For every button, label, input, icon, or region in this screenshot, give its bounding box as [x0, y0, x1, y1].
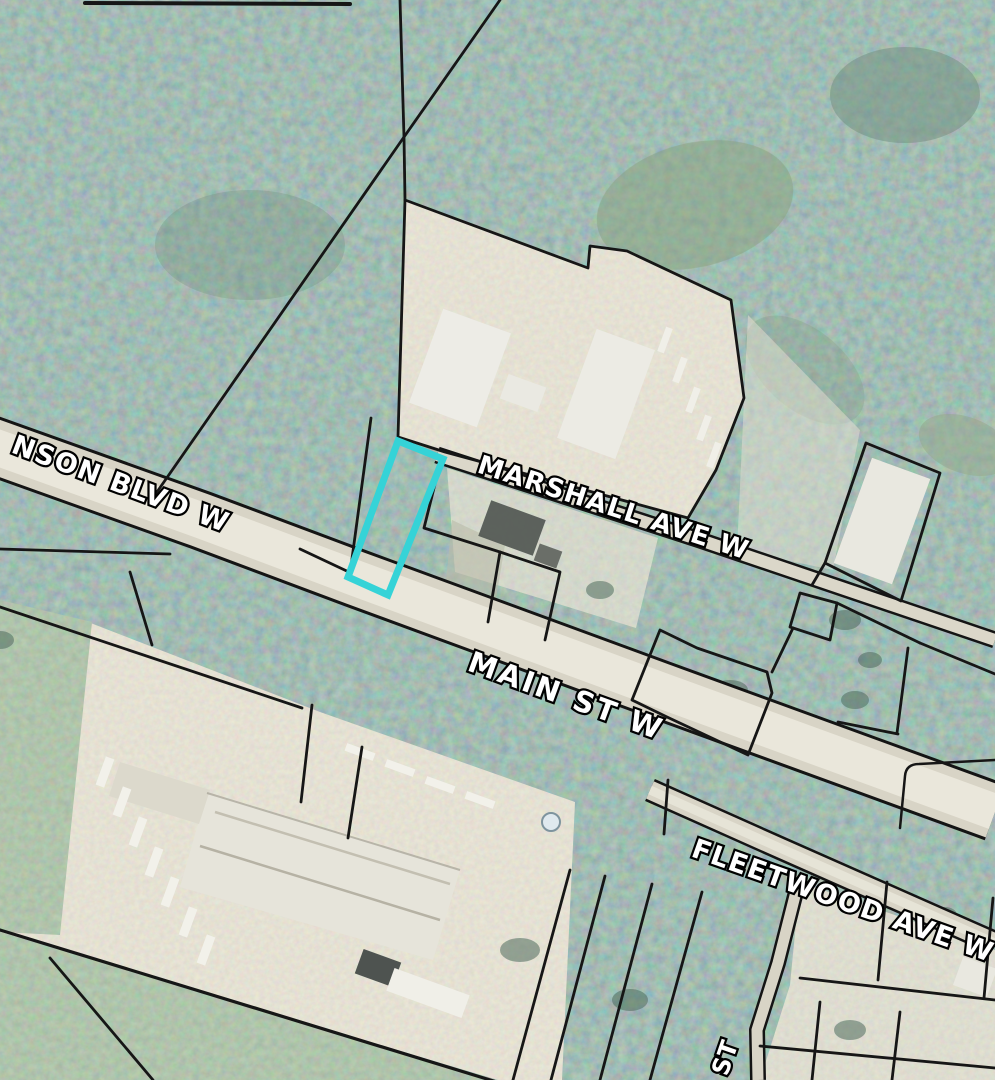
storage-tank — [542, 813, 560, 831]
map-viewport[interactable]: NSON BLVD W MARSHALL AVE W MAIN ST W FLE… — [0, 0, 995, 1080]
map-canvas[interactable]: NSON BLVD W MARSHALL AVE W MAIN ST W FLE… — [0, 0, 995, 1080]
